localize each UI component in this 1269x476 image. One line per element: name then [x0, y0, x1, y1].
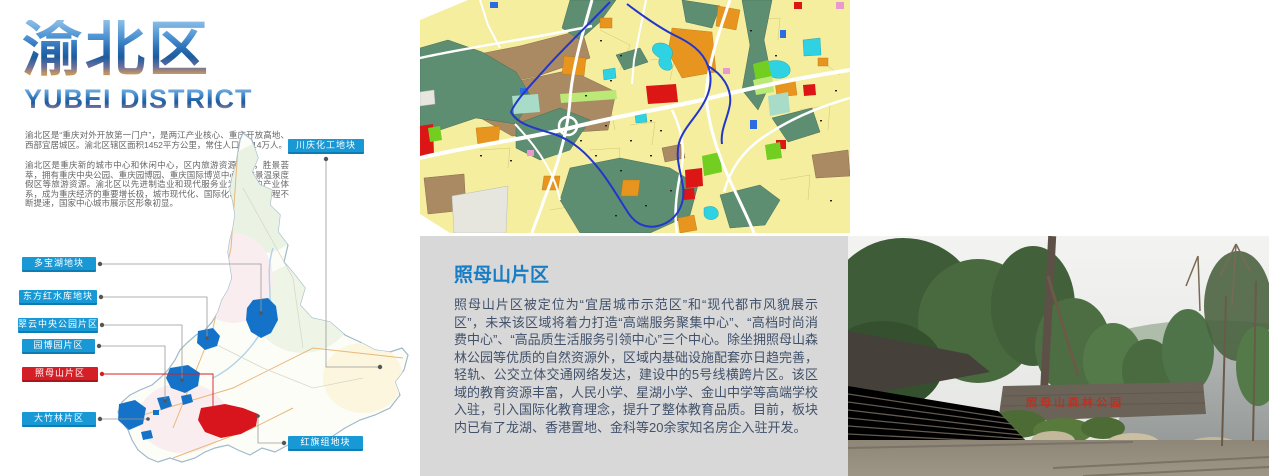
area-label-dazhulin[interactable]: 大竹林片区 [22, 412, 96, 427]
area-label-dongfanghong-reservoir[interactable]: 东方红水库地块 [19, 290, 97, 305]
area-label-cuiyun-central-park[interactable]: 翠云中央公园片区 [18, 318, 98, 333]
panel-body-text: 照母山片区被定位为“宜居城市示范区”和“现代都市风貌展示区”，未来该区域将着力打… [454, 296, 818, 436]
page-subtitle: YUBEI DISTRICT [24, 86, 253, 113]
wall-inscription: 照母山森林公园 [1026, 395, 1124, 409]
area-label-chuanqing-chemical[interactable]: 川庆化工地块 [288, 139, 364, 154]
brochure-page: 渝北区 YUBEI DISTRICT 渝北区是“重庆对外开放第一门户”，是两江产… [0, 0, 1269, 476]
panel-title: 照母山片区 [454, 260, 549, 287]
district-map [113, 128, 420, 476]
area-label-duobao-lake[interactable]: 多宝湖地块 [22, 257, 96, 272]
area-label-hongqi[interactable]: 红旗组地块 [288, 436, 363, 451]
left-section: 渝北区 YUBEI DISTRICT 渝北区是“重庆对外开放第一门户”，是两江产… [0, 0, 420, 476]
planning-map [420, 0, 850, 233]
area-label-zhaomushan[interactable]: 照母山片区 [22, 367, 98, 382]
park-photo: 照母山森林公园 [848, 236, 1269, 476]
page-title: 渝北区 [22, 20, 211, 80]
info-panel: 照母山片区 照母山片区被定位为“宜居城市示范区”和“现代都市风貌展示区”，未来该… [420, 236, 848, 476]
area-label-yuanboyuan[interactable]: 园博园片区 [22, 339, 95, 354]
